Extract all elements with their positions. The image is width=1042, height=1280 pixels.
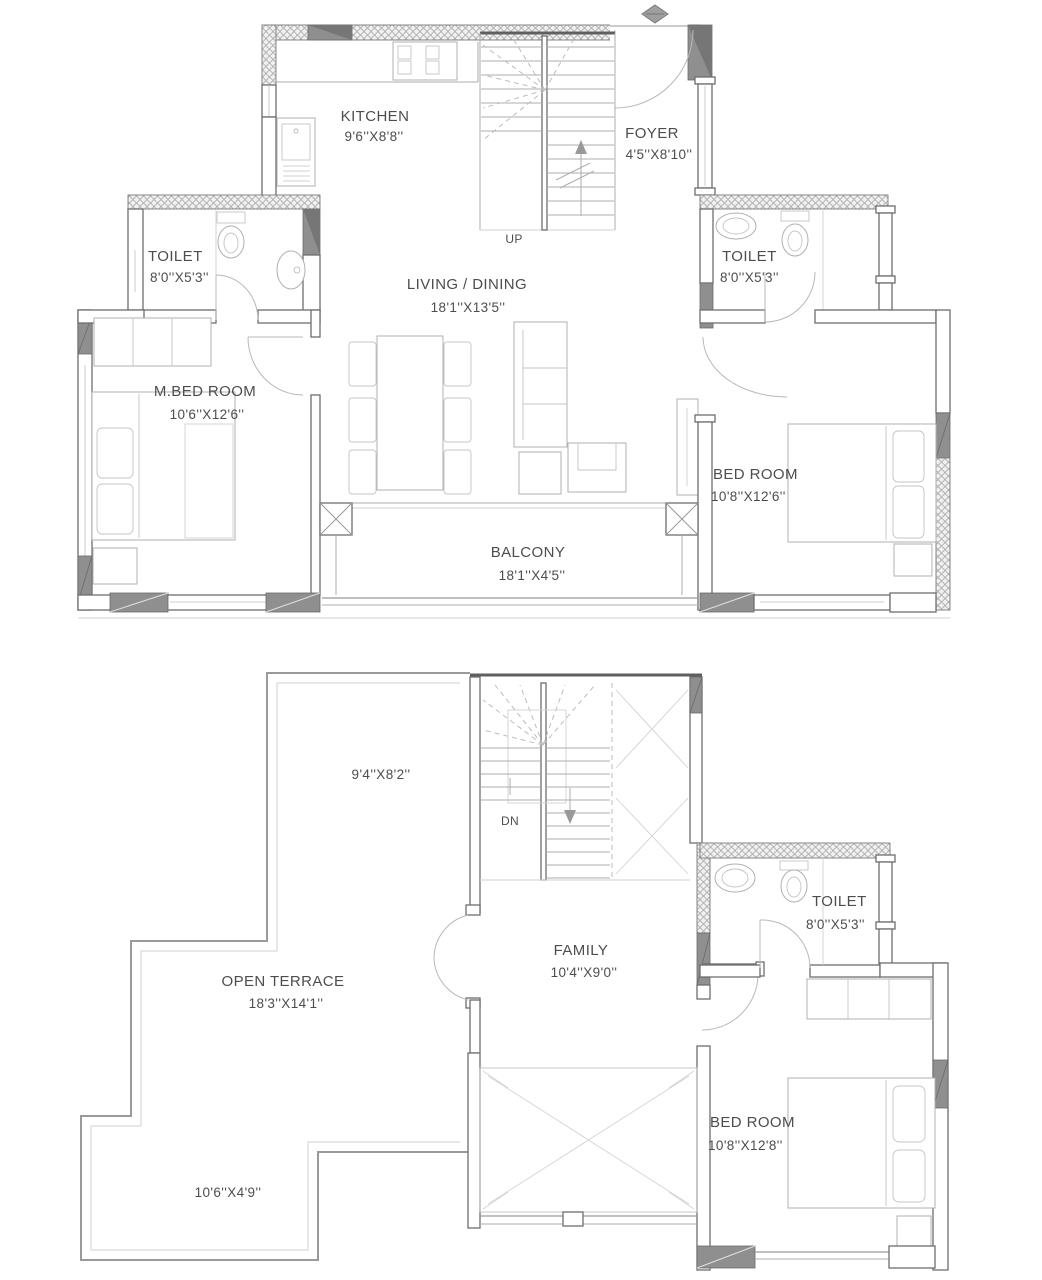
room-label-kitchen: KITCHEN <box>341 108 410 125</box>
column-icon <box>666 503 698 535</box>
basin-icon <box>277 251 305 289</box>
room-dims-open-terrace: 18'3''X14'1'' <box>249 996 324 1011</box>
room-dims-bedroom-upper: 10'8''X12'6'' <box>711 489 786 504</box>
entry-door <box>615 30 693 108</box>
tv-unit-icon <box>677 399 698 495</box>
wc-icon <box>781 211 809 256</box>
room-dims-master-bedroom: 10'6''X12'6'' <box>170 407 245 422</box>
living-dining: LIVING / DINING 18'1''X13'5'' <box>349 276 698 495</box>
room-dims-living-dining: 18'1''X13'5'' <box>431 300 506 315</box>
double-bed-icon <box>788 1078 935 1208</box>
room-label-toilet-right: TOILET <box>722 248 777 265</box>
stair-area-dims: 9'4''X8'2'' <box>352 767 411 782</box>
room-dims-toilet-right: 8'0''X5'3'' <box>720 270 779 285</box>
upper-floor-plan: KITCHEN 9'6''X8'8'' <box>78 5 950 618</box>
room-dims-foyer: 4'5''X8'10'' <box>626 147 693 162</box>
french-doors <box>434 905 484 1053</box>
staircase-up: UP <box>480 33 615 246</box>
wc-icon <box>217 212 245 258</box>
foyer: FOYER 4'5''X8'10'' <box>625 125 692 162</box>
room-dims-bedroom-lower: 10'8''X12'8'' <box>708 1138 783 1153</box>
lower-floor-plan: DN 9'4''X8'2'' OPEN TERRACE 18'3''X14'1'… <box>81 673 948 1270</box>
stairs-down-label: DN <box>501 814 519 828</box>
room-label-balcony: BALCONY <box>491 544 566 561</box>
open-terrace: OPEN TERRACE 18'3''X14'1'' 10'6''X4'9'' <box>81 673 470 1260</box>
wardrobe-icon <box>94 318 211 366</box>
dining-table-icon <box>349 336 471 494</box>
room-dims-family: 10'4''X9'0'' <box>551 965 618 980</box>
bedside-table-icon <box>894 544 932 576</box>
bedroom-upper: BED ROOM 10'8''X12'6'' <box>695 310 950 610</box>
room-dims-toilet-left: 8'0''X5'3'' <box>150 270 209 285</box>
void-cutout <box>468 1053 697 1228</box>
bedroom-lower: BED ROOM 10'8''X12'8'' <box>697 963 948 1270</box>
basin-icon <box>716 213 756 239</box>
room-label-open-terrace: OPEN TERRACE <box>222 973 345 990</box>
wc-icon <box>780 861 808 902</box>
floorplan-page: KITCHEN 9'6''X8'8'' <box>0 0 1042 1280</box>
bedside-table-icon <box>93 548 137 584</box>
room-dims-balcony: 18'1''X4'5'' <box>499 568 566 583</box>
bedside-table-icon <box>897 1216 931 1250</box>
room-label-living-dining: LIVING / DINING <box>407 276 527 293</box>
north-arrow-icon <box>642 5 668 23</box>
room-label-bedroom-upper: BED ROOM <box>713 466 798 483</box>
room-label-bedroom-lower: BED ROOM <box>710 1114 795 1131</box>
floor-plan-drawing: KITCHEN 9'6''X8'8'' <box>0 0 1042 1280</box>
toilet-lower: TOILET 8'0''X5'3'' <box>700 843 946 977</box>
master-bedroom: M.BED ROOM 10'6''X12'6'' <box>78 310 320 610</box>
room-label-toilet-left: TOILET <box>148 248 203 265</box>
room-label-toilet-lower: TOILET <box>812 893 867 910</box>
room-dims-kitchen: 9'6''X8'8'' <box>345 129 404 144</box>
kitchen: KITCHEN 9'6''X8'8'' <box>276 42 478 186</box>
kitchen-sink-icon <box>277 118 315 186</box>
room-label-master-bedroom: M.BED ROOM <box>154 383 256 400</box>
toilet-left: TOILET 8'0''X5'3'' <box>128 195 320 323</box>
toilet-right: TOILET 8'0''X5'3'' <box>700 195 936 328</box>
basin-icon <box>715 864 755 892</box>
room-label-foyer: FOYER <box>625 125 679 142</box>
column-icon <box>320 503 352 535</box>
sofa-icon <box>514 322 626 494</box>
stairs-up-label: UP <box>505 232 522 246</box>
room-label-family: FAMILY <box>554 942 609 959</box>
stove-icon <box>393 42 457 80</box>
terrace-strip-dims: 10'6''X4'9'' <box>195 1185 262 1200</box>
staircase-down: DN 9'4''X8'2'' <box>352 675 702 913</box>
wardrobe-icon <box>807 979 931 1019</box>
upper-exterior-walls <box>262 24 715 197</box>
room-dims-toilet-lower: 8'0''X5'3'' <box>806 917 865 932</box>
double-bed-icon <box>788 424 936 542</box>
